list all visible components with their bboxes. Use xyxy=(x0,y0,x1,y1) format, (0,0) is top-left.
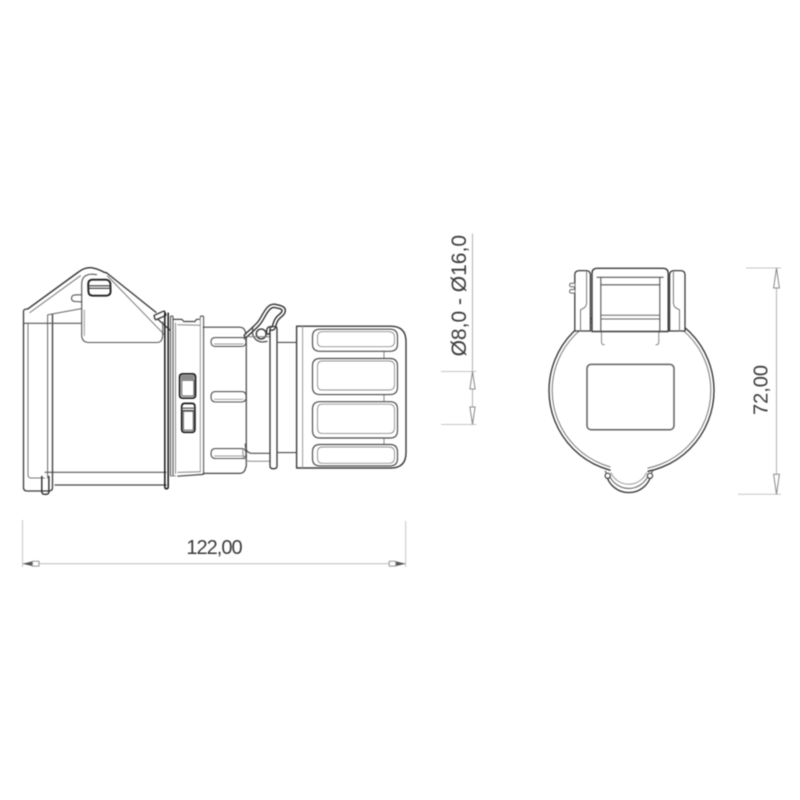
svg-text:122,00: 122,00 xyxy=(186,537,242,559)
svg-text:72,00: 72,00 xyxy=(751,365,773,415)
svg-text:Ø8,0 - Ø16,0: Ø8,0 - Ø16,0 xyxy=(448,235,471,356)
